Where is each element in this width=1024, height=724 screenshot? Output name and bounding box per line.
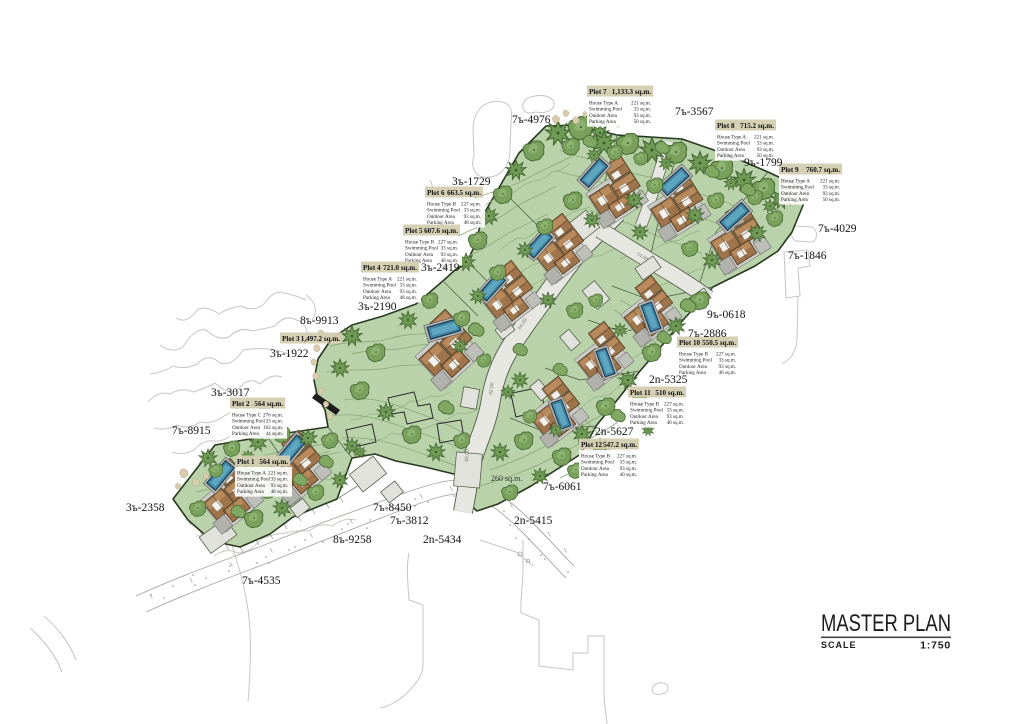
svg-text:Parking Area: Parking Area	[630, 420, 657, 426]
svg-text:House Type A: House Type A	[237, 471, 266, 477]
svg-text:Swimming Pool: Swimming Pool	[232, 419, 266, 425]
svg-text:2n-5434: 2n-5434	[423, 534, 462, 546]
svg-text:227 sq.m.: 227 sq.m.	[664, 402, 684, 408]
svg-text:93 sq.m.: 93 sq.m.	[400, 289, 417, 295]
svg-text:33 sq.m.: 33 sq.m.	[620, 460, 637, 466]
svg-text:Plot 6: Plot 6	[427, 189, 445, 197]
svg-text:9ъ-1799: 9ъ-1799	[744, 157, 783, 169]
svg-text:7ъ-8450: 7ъ-8450	[373, 502, 412, 514]
svg-text:Outdoor Area: Outdoor Area	[589, 113, 618, 119]
svg-text:Swimming Pool: Swimming Pool	[589, 107, 623, 113]
svg-text:Plot 4: Plot 4	[363, 264, 381, 272]
svg-text:Swimming Pool: Swimming Pool	[679, 358, 713, 364]
svg-text:48 sq.m.: 48 sq.m.	[464, 220, 481, 226]
svg-text:3ъ-2358: 3ъ-2358	[126, 502, 165, 514]
svg-text:607.6 sq.m.: 607.6 sq.m.	[424, 227, 458, 235]
svg-text:Parking Area: Parking Area	[581, 472, 608, 478]
svg-text:221 sq.m.: 221 sq.m.	[631, 101, 651, 107]
svg-text:3ъ-2419: 3ъ-2419	[421, 262, 460, 274]
svg-text:7ъ-3812: 7ъ-3812	[390, 515, 429, 527]
svg-text:Outdoor Area: Outdoor Area	[781, 191, 810, 197]
svg-text:3ъ-3017: 3ъ-3017	[211, 387, 250, 399]
svg-text:7ъ-3567: 7ъ-3567	[675, 106, 714, 118]
svg-text:227 sq.m.: 227 sq.m.	[438, 240, 458, 246]
svg-text:2n-5415: 2n-5415	[514, 515, 553, 527]
svg-text:93 sq.m.: 93 sq.m.	[634, 113, 651, 119]
svg-text:House Type B: House Type B	[581, 454, 611, 460]
svg-text:7ъ-8915: 7ъ-8915	[172, 425, 211, 437]
svg-text:1:750: 1:750	[920, 640, 951, 652]
svg-text:Outdoor Area: Outdoor Area	[581, 466, 610, 472]
svg-text:Parking Area: Parking Area	[781, 197, 808, 203]
svg-text:Outdoor Area: Outdoor Area	[405, 252, 434, 258]
svg-text:715.2 sq.m.: 715.2 sq.m.	[740, 122, 774, 130]
svg-text:3ъ-1922: 3ъ-1922	[270, 348, 309, 360]
svg-text:33 sq.m.: 33 sq.m.	[757, 141, 774, 147]
svg-text:Plot 7: Plot 7	[589, 88, 607, 96]
svg-text:House Type A: House Type A	[717, 135, 746, 141]
svg-text:40 sq.m.: 40 sq.m.	[667, 420, 684, 426]
svg-text:House Type C: House Type C	[232, 413, 262, 419]
svg-text:Swimming Pool: Swimming Pool	[717, 141, 751, 147]
svg-text:48 sq.m.: 48 sq.m.	[400, 295, 417, 301]
svg-text:721.0 sq.m.: 721.0 sq.m.	[383, 264, 417, 272]
svg-text:547.2 sq.m.: 547.2 sq.m.	[603, 441, 637, 449]
svg-text:House Type A: House Type A	[363, 277, 392, 283]
svg-text:Outdoor Area: Outdoor Area	[630, 414, 659, 420]
svg-text:93 sq.m.: 93 sq.m.	[757, 147, 774, 153]
svg-text:7ъ-4029: 7ъ-4029	[818, 223, 857, 235]
svg-text:House Type B: House Type B	[679, 352, 709, 358]
svg-text:221 sq.m.: 221 sq.m.	[820, 179, 840, 185]
svg-text:221 sq.m.: 221 sq.m.	[754, 135, 774, 141]
svg-text:40.00: 40.00	[464, 449, 471, 462]
svg-text:House Type B: House Type B	[427, 202, 457, 208]
svg-text:Plot 11: Plot 11	[630, 389, 651, 397]
svg-text:44 sq.m.: 44 sq.m.	[266, 431, 283, 437]
svg-text:40 sq.m.: 40 sq.m.	[620, 472, 637, 478]
svg-text:276 sq.m.: 276 sq.m.	[263, 413, 283, 419]
svg-text:Plot 8: Plot 8	[717, 122, 735, 130]
svg-text:33 sq.m.: 33 sq.m.	[271, 477, 288, 483]
svg-text:663.5 sq.m.: 663.5 sq.m.	[447, 189, 481, 197]
svg-text:Parking Area: Parking Area	[237, 489, 264, 495]
svg-text:Swimming Pool: Swimming Pool	[427, 208, 461, 214]
svg-text:Swimming Pool: Swimming Pool	[781, 185, 815, 191]
svg-text:50 sq.m.: 50 sq.m.	[823, 197, 840, 203]
svg-text:9ъ-0618: 9ъ-0618	[707, 309, 746, 321]
svg-text:510 sq.m.: 510 sq.m.	[655, 389, 684, 397]
svg-text:760.7 sq.m.: 760.7 sq.m.	[806, 166, 840, 174]
svg-text:564 sq.m.: 564 sq.m.	[259, 458, 288, 466]
svg-text:33 sq.m.: 33 sq.m.	[667, 408, 684, 414]
svg-text:227 sq.m.: 227 sq.m.	[716, 352, 736, 358]
svg-text:Parking Area: Parking Area	[589, 119, 616, 125]
svg-text:93 sq.m.: 93 sq.m.	[441, 252, 458, 258]
svg-text:564 sq.m.: 564 sq.m.	[254, 400, 283, 408]
svg-text:House Type B: House Type B	[405, 240, 435, 246]
svg-text:Outdoor Area: Outdoor Area	[232, 425, 261, 431]
svg-text:33 sq.m.: 33 sq.m.	[464, 208, 481, 214]
svg-text:SCALE: SCALE	[821, 640, 857, 650]
svg-text:46 sq.m.: 46 sq.m.	[719, 370, 736, 376]
svg-text:Plot 2: Plot 2	[232, 400, 250, 408]
svg-text:Swimming Pool: Swimming Pool	[630, 408, 664, 414]
svg-text:Plot 5: Plot 5	[405, 227, 423, 235]
svg-text:Plot 9: Plot 9	[781, 166, 799, 174]
svg-text:8ъ-9258: 8ъ-9258	[333, 534, 372, 546]
svg-text:50 sq.m.: 50 sq.m.	[634, 119, 651, 125]
svg-text:Swimming Pool: Swimming Pool	[363, 283, 397, 289]
svg-text:7ъ-6061: 7ъ-6061	[543, 481, 582, 493]
svg-text:Swimming Pool: Swimming Pool	[581, 460, 615, 466]
svg-text:7ъ-1846: 7ъ-1846	[788, 250, 827, 262]
svg-text:Parking Area: Parking Area	[717, 153, 744, 159]
svg-text:House Type B: House Type B	[630, 402, 660, 408]
svg-text:93 sq.m.: 93 sq.m.	[823, 191, 840, 197]
svg-text:8ъ-9913: 8ъ-9913	[300, 315, 339, 327]
svg-text:2n-5627: 2n-5627	[595, 426, 634, 438]
svg-text:33 sq.m.: 33 sq.m.	[266, 419, 283, 425]
svg-text:221 sq.m.: 221 sq.m.	[268, 471, 288, 477]
svg-text:1,133.3 sq.m.: 1,133.3 sq.m.	[612, 88, 651, 96]
svg-text:Outdoor Area: Outdoor Area	[717, 147, 746, 153]
svg-text:House Type A: House Type A	[781, 179, 810, 185]
svg-text:33 sq.m.: 33 sq.m.	[400, 283, 417, 289]
svg-text:MASTER PLAN: MASTER PLAN	[821, 610, 951, 637]
svg-text:7ъ-2886: 7ъ-2886	[688, 328, 727, 340]
svg-text:Outdoor Area: Outdoor Area	[679, 364, 708, 370]
svg-text:33 sq.m.: 33 sq.m.	[441, 246, 458, 252]
svg-text:Plot 1: Plot 1	[237, 458, 255, 466]
svg-text:Outdoor Area: Outdoor Area	[363, 289, 392, 295]
svg-text:33 sq.m.: 33 sq.m.	[719, 358, 736, 364]
svg-text:2n-5325: 2n-5325	[649, 374, 688, 386]
svg-text:48 sq.m.: 48 sq.m.	[271, 489, 288, 495]
svg-text:Plot 10: Plot 10	[679, 339, 701, 347]
svg-text:102 sq.m.: 102 sq.m.	[263, 425, 283, 431]
svg-text:7ъ-4976: 7ъ-4976	[512, 114, 551, 126]
svg-text:93 sq.m.: 93 sq.m.	[667, 414, 684, 420]
svg-text:Plot 12: Plot 12	[581, 441, 603, 449]
svg-text:3ъ-1729: 3ъ-1729	[452, 176, 491, 188]
svg-text:3ъ-2190: 3ъ-2190	[358, 301, 397, 313]
svg-text:Outdoor Area: Outdoor Area	[427, 214, 456, 220]
svg-text:33 sq.m.: 33 sq.m.	[634, 107, 651, 113]
svg-text:93 sq.m.: 93 sq.m.	[464, 214, 481, 220]
svg-text:Outdoor Area: Outdoor Area	[237, 483, 266, 489]
svg-text:1,497.2 sq.m.: 1,497.2 sq.m.	[301, 335, 340, 343]
svg-text:260 sq.m.: 260 sq.m.	[491, 474, 522, 483]
svg-text:227 sq.m.: 227 sq.m.	[461, 202, 481, 208]
svg-text:7ъ-4535: 7ъ-4535	[242, 575, 281, 587]
svg-text:Plot 3: Plot 3	[282, 335, 300, 343]
svg-text:Parking Area: Parking Area	[232, 431, 259, 437]
svg-text:House Type A: House Type A	[589, 101, 618, 107]
svg-text:93 sq.m.: 93 sq.m.	[271, 483, 288, 489]
svg-text:Swimming Pool: Swimming Pool	[237, 477, 271, 483]
svg-text:93 sq.m.: 93 sq.m.	[620, 466, 637, 472]
svg-text:227 sq.m.: 227 sq.m.	[617, 454, 637, 460]
svg-text:33 sq.m.: 33 sq.m.	[823, 185, 840, 191]
svg-text:550.5 sq.m.: 550.5 sq.m.	[702, 339, 736, 347]
svg-text:93 sq.m.: 93 sq.m.	[719, 364, 736, 370]
svg-text:Swimming Pool: Swimming Pool	[405, 246, 439, 252]
svg-text:221 sq.m.: 221 sq.m.	[397, 277, 417, 283]
